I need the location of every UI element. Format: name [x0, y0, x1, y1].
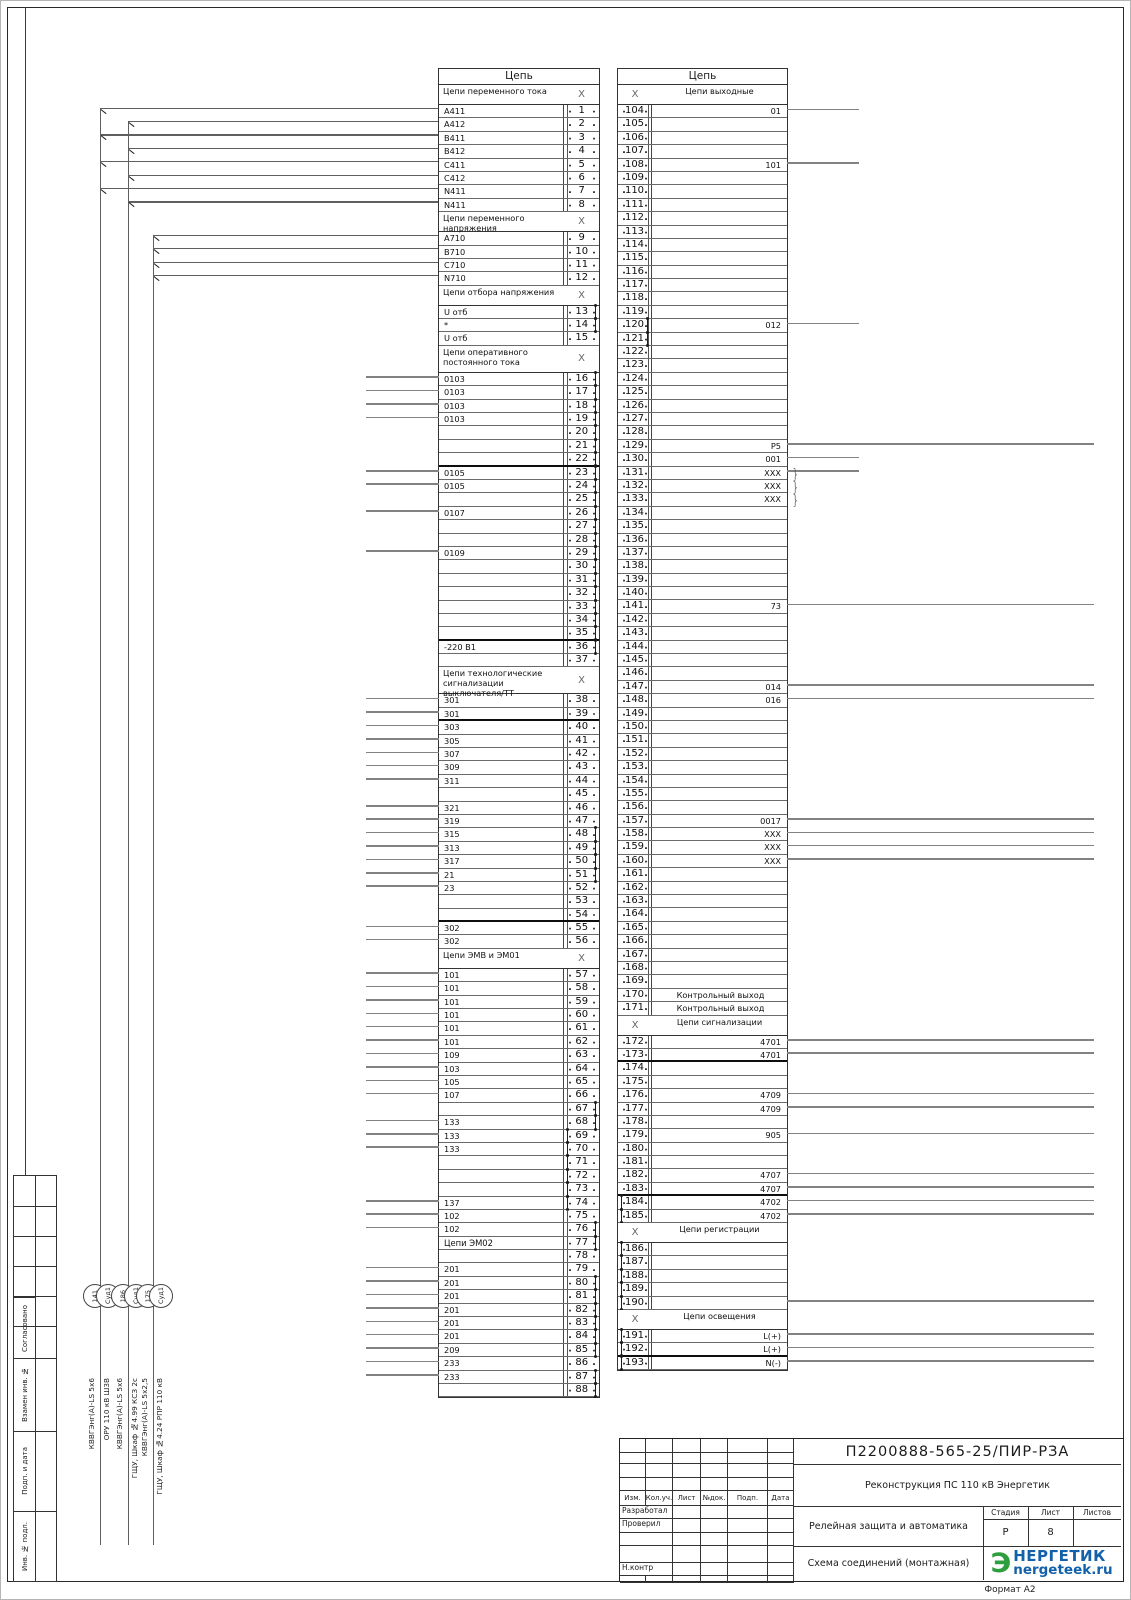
terminal-row: 20 [439, 426, 599, 439]
circuit-label [652, 627, 787, 639]
circuit-label: 101 [439, 996, 564, 1008]
terminal-row: 45 [439, 788, 599, 801]
section-x-mark: X [564, 949, 599, 968]
terminal-number: 129 [618, 440, 652, 452]
cable-destination-label: ОРУ 110 кВ Ш3В [102, 1378, 113, 1543]
terminal-row: 20181 [439, 1290, 599, 1303]
wire-line [787, 1200, 1094, 1202]
terminal-row: 138 [618, 560, 787, 573]
terminal-row: 161 [618, 868, 787, 881]
terminal-number: 106 [618, 132, 652, 144]
terminal-row: 30256 [439, 935, 599, 948]
terminal-number: 137 [618, 547, 652, 559]
terminal-row: 13368 [439, 1116, 599, 1129]
circuit-label: C710 [439, 259, 564, 271]
table-title: Цепь [618, 69, 787, 85]
terminal-number: 192 [618, 1343, 652, 1354]
circuit-label: 107 [439, 1089, 564, 1101]
terminal-number: 178 [618, 1116, 652, 1128]
circuit-label [652, 667, 787, 679]
circuit-label: L(+) [652, 1343, 787, 1354]
terminal-row: 27 [439, 520, 599, 533]
section-header-label: Цепи технологические сигнализации выключ… [439, 667, 564, 693]
jumper-link [595, 1236, 596, 1250]
circuit-label: 302 [439, 935, 564, 947]
terminal-number: 79 [564, 1263, 599, 1275]
terminal-number: 71 [564, 1156, 599, 1168]
wire-line [366, 1026, 439, 1028]
terminal-row: 106 [618, 132, 787, 145]
circuit-label [652, 654, 787, 666]
section-header: XЦепи освещения [618, 1310, 787, 1330]
circuit-label: 101 [439, 982, 564, 994]
terminal-number: 76 [564, 1223, 599, 1235]
signature-cell [701, 1519, 728, 1533]
signature-cell [728, 1546, 768, 1563]
circuit-label: N411 [439, 185, 564, 197]
circuit-label [439, 1384, 564, 1396]
terminal-number: 136 [618, 534, 652, 546]
circuit-label: XXX [652, 480, 787, 492]
circuit-label [652, 534, 787, 546]
terminal-number: 20 [564, 426, 599, 438]
terminal-row: 151 [618, 734, 787, 747]
drawing-name: Схема соединений (монтажная) [794, 1546, 984, 1580]
signature-cell [620, 1453, 646, 1464]
terminal-row: 189 [618, 1283, 787, 1296]
terminal-row: 149 [618, 708, 787, 721]
signature-cell [673, 1453, 701, 1464]
logo-e-icon: Э [991, 1550, 1012, 1577]
cable-destination-text: ГЩУ, Шкаф №4.24 РПР 110 кВ [155, 1378, 164, 1495]
circuit-label [439, 560, 564, 572]
terminal-row: 110 [618, 185, 787, 198]
wire-line [787, 1186, 1094, 1188]
terminal-row: 22 [439, 453, 599, 466]
cable-wire [100, 134, 438, 135]
terminal-number: 10 [564, 246, 599, 258]
circuit-label [652, 962, 787, 974]
terminal-row: 30138 [439, 694, 599, 707]
circuit-label: 101 [439, 1022, 564, 1034]
wire-line [787, 443, 1094, 445]
terminal-number: 77 [564, 1237, 599, 1249]
terminal-row: 150 [618, 721, 787, 734]
cable-wire [100, 108, 438, 109]
wire-line [366, 765, 439, 767]
terminal-row: 88 [439, 1384, 599, 1397]
circuit-label: 016 [652, 694, 787, 706]
signature-cell [701, 1576, 728, 1583]
terminal-row: 23386 [439, 1357, 599, 1370]
terminal-number: 144 [618, 641, 652, 653]
sheet-value: 8 [1028, 1519, 1074, 1547]
signature-cell [768, 1439, 794, 1453]
terminal-number: 50 [564, 855, 599, 867]
terminal-number: 36 [564, 641, 599, 653]
terminal-row: 122 [618, 346, 787, 359]
terminal-row: 147014 [618, 681, 787, 694]
sheets-value [1073, 1519, 1121, 1547]
circuit-label [652, 413, 787, 425]
terminal-row: 131XXX} [618, 467, 787, 480]
signature-cell [728, 1453, 768, 1464]
terminal-number: 74 [564, 1197, 599, 1209]
terminal-number: 32 [564, 587, 599, 599]
wire-line [366, 972, 439, 974]
terminal-number: 152 [618, 748, 652, 760]
terminal-row: 1724701 [618, 1036, 787, 1049]
terminal-row: 30255 [439, 922, 599, 935]
section-header-label: Цепи сигнализации [652, 1016, 787, 1035]
wire-line [787, 1133, 1094, 1135]
terminal-row: 148016 [618, 694, 787, 707]
circuit-label: 4707 [652, 1169, 787, 1181]
wire-line [366, 1146, 439, 1148]
terminal-row: 170Контрольный выход [618, 989, 787, 1002]
terminal-row: 10160 [439, 1009, 599, 1022]
cable-type-text: КВВГЭнг(А)-LS 5х2,5 [140, 1378, 149, 1456]
circuit-label [652, 1062, 787, 1074]
terminal-number: 9 [564, 232, 599, 244]
terminal-number: 186 [618, 1243, 652, 1255]
circuit-label [439, 426, 564, 438]
terminal-row: 135 [618, 520, 787, 533]
terminal-row: 167 [618, 949, 787, 962]
terminal-row: C71011 [439, 259, 599, 272]
section-x-mark: X [564, 346, 599, 372]
section-x-mark: X [618, 1223, 652, 1242]
terminal-number: 128 [618, 426, 652, 438]
table-title: Цепь [439, 69, 599, 85]
cable-wire [153, 235, 438, 236]
terminal-row: 154 [618, 775, 787, 788]
terminal-number: 48 [564, 828, 599, 840]
section-header: XЦепи выходные [618, 85, 787, 105]
terminal-number: 39 [564, 708, 599, 719]
circuit-label: 137 [439, 1197, 564, 1209]
circuit-label [652, 426, 787, 438]
circuit-label [652, 641, 787, 653]
terminal-number: 22 [564, 453, 599, 464]
wire-line [366, 1039, 439, 1041]
terminal-row: 116 [618, 266, 787, 279]
signature-cell [620, 1576, 646, 1583]
circuit-label: 305 [439, 735, 564, 747]
signature-cell [728, 1464, 768, 1478]
circuit-label [652, 560, 787, 572]
section-header-label: Цепи переменного напряжения [439, 212, 564, 231]
terminal-row: C4115 [439, 159, 599, 172]
terminal-row: 132XXX} [618, 480, 787, 493]
signature-cell [728, 1478, 768, 1491]
circuit-label: XXX [652, 467, 787, 479]
terminal-row: 143 [618, 627, 787, 640]
terminal-number: 145 [618, 654, 652, 666]
terminal-number: 41 [564, 735, 599, 747]
signature-cell [673, 1464, 701, 1478]
terminal-number: 55 [564, 922, 599, 934]
cable-wire [153, 262, 438, 263]
stamp-label-vzamen: Взамен инв. № [14, 1359, 35, 1430]
terminal-number: 54 [564, 909, 599, 920]
terminal-row: 179905 [618, 1129, 787, 1142]
circuit-label: 101 [652, 159, 787, 171]
cable-wire [153, 248, 438, 249]
terminal-row: 20180 [439, 1277, 599, 1290]
terminal-number: 181 [618, 1156, 652, 1168]
terminal-number: 63 [564, 1049, 599, 1061]
terminal-number: 171 [618, 1002, 652, 1014]
circuit-label: 4701 [652, 1049, 787, 1060]
terminal-row: 181 [618, 1156, 787, 1169]
terminal-row: 30943 [439, 761, 599, 774]
signature-cell [728, 1576, 768, 1583]
terminal-number: 109 [618, 172, 652, 184]
circuit-label: N710 [439, 272, 564, 284]
circuit-label: 201 [439, 1330, 564, 1342]
terminal-number: 28 [564, 534, 599, 546]
circuit-label: 133 [439, 1143, 564, 1155]
circuit-label: C412 [439, 172, 564, 184]
terminal-number: 193 [618, 1357, 652, 1369]
wire-line [366, 859, 439, 861]
jumper-link [621, 1356, 622, 1370]
terminal-row: 73 [439, 1183, 599, 1196]
terminal-number: 150 [618, 721, 652, 733]
circuit-label: 0103 [439, 400, 564, 412]
terminal-number: 30 [564, 560, 599, 572]
signature-cell [768, 1519, 794, 1533]
cable-destination-text: ОРУ 110 кВ Ш3В [102, 1378, 111, 1440]
wire-line [787, 1333, 1094, 1335]
circuit-label [439, 654, 564, 666]
circuit-label [652, 721, 787, 733]
wire-line [366, 805, 439, 807]
cable-type-label: КВВГЭнг(А)-LS 5х6 [87, 1378, 98, 1543]
terminal-number: 81 [564, 1290, 599, 1302]
circuit-label [652, 1243, 787, 1255]
cable-destination-label: ГЩУ, Шкаф №4.24 РПР 110 кВ [155, 1378, 166, 1543]
circuit-label [439, 788, 564, 800]
terminal-number: 110 [618, 185, 652, 197]
wire-line [366, 1361, 439, 1363]
terminal-number: 162 [618, 882, 652, 894]
role-cell [620, 1546, 673, 1563]
terminal-number: 84 [564, 1330, 599, 1342]
stamp-label-inv: Инв. № подл. [14, 1512, 35, 1582]
circuit-label: Контрольный выход [652, 1002, 787, 1014]
circuit-label: U отб [439, 306, 564, 318]
terminal-number: 122 [618, 346, 652, 358]
terminal-row: 188 [618, 1270, 787, 1283]
signature-cell [728, 1506, 768, 1519]
terminal-row: 33 [439, 601, 599, 614]
signature-cell [768, 1546, 794, 1563]
terminal-number: 38 [564, 694, 599, 706]
wire-line [787, 1093, 1094, 1095]
signature-cell [701, 1563, 728, 1576]
circuit-label [652, 172, 787, 184]
signature-cell [768, 1576, 794, 1583]
terminal-number: 165 [618, 922, 652, 934]
terminal-row: 130001 [618, 453, 787, 466]
circuit-label [652, 400, 787, 412]
circuit-label [652, 908, 787, 920]
circuit-label: A710 [439, 232, 564, 244]
terminal-number: 40 [564, 721, 599, 733]
wire-line [787, 1300, 1094, 1302]
wire-line [366, 1133, 439, 1135]
terminal-row: 192L(+) [618, 1343, 787, 1356]
wire-line [366, 1294, 439, 1296]
cable-wire [128, 175, 438, 176]
circuit-label: 233 [439, 1371, 564, 1383]
terminal-number: 174 [618, 1062, 652, 1074]
wire-line [366, 1267, 439, 1269]
terminal-row: 146 [618, 667, 787, 680]
terminal-row: 10161 [439, 1022, 599, 1035]
circuit-label [652, 788, 787, 800]
circuit-label: XXX [652, 828, 787, 840]
circuit-label [439, 520, 564, 532]
terminal-number: 156 [618, 801, 652, 813]
sheet-label: Лист [1028, 1506, 1074, 1520]
signature-cell [673, 1576, 701, 1583]
circuit-label [652, 118, 787, 130]
circuit-label: 21 [439, 869, 564, 881]
terminal-row: 113 [618, 226, 787, 239]
terminal-number: 11 [564, 259, 599, 271]
circuit-label: Контрольный выход [652, 989, 787, 1001]
circuit-label: B412 [439, 145, 564, 157]
terminal-row: 32 [439, 587, 599, 600]
circuit-label: 905 [652, 1129, 787, 1141]
terminal-number: 142 [618, 614, 652, 626]
wire-line [366, 550, 439, 552]
terminal-row: 10158 [439, 982, 599, 995]
signature-cell [673, 1439, 701, 1453]
wire-line [787, 1347, 1094, 1349]
circuit-label [652, 975, 787, 987]
wire-line [366, 376, 439, 378]
wire-line [787, 858, 1094, 860]
cable-type-label: КВВГЭнг(А)-LS 5х6 [115, 1378, 126, 1543]
circuit-label: 317 [439, 855, 564, 867]
terminal-row: 140 [618, 587, 787, 600]
terminal-row: 31 [439, 574, 599, 587]
terminal-number: 141 [618, 600, 652, 612]
terminal-row: 53 [439, 895, 599, 908]
terminal-number: 25 [564, 493, 599, 505]
circuit-label: 0103 [439, 386, 564, 398]
circuit-label [439, 1156, 564, 1168]
signature-cell [768, 1533, 794, 1546]
terminal-number: 146 [618, 667, 652, 679]
terminal-row: 145 [618, 654, 787, 667]
signature-cell [620, 1464, 646, 1478]
terminal-number: 166 [618, 935, 652, 947]
circuit-label [652, 1270, 787, 1282]
circuit-label [652, 574, 787, 586]
circuit-label [439, 601, 564, 613]
circuit-label: N411 [439, 199, 564, 211]
terminal-number: 33 [564, 601, 599, 613]
margin-stamp: Согласовано Взамен инв. № Подп. и дата И… [13, 1175, 57, 1582]
jumper-link [595, 1383, 596, 1397]
circuit-label [439, 453, 564, 464]
jumper-link [647, 332, 648, 346]
terminal-row: 31349 [439, 842, 599, 855]
terminal-number: 88 [564, 1384, 599, 1396]
terminal-number: 177 [618, 1103, 652, 1115]
terminal-row: 31144 [439, 775, 599, 788]
terminal-number: 168 [618, 962, 652, 974]
wire-line [366, 1227, 439, 1229]
signature-cell [768, 1563, 794, 1576]
circuit-label: 4707 [652, 1183, 787, 1194]
terminal-row: 178 [618, 1116, 787, 1129]
terminal-row: 10162 [439, 1036, 599, 1049]
circuit-label: A411 [439, 105, 564, 117]
terminal-row: 20183 [439, 1317, 599, 1330]
circuit-label [652, 775, 787, 787]
terminal-number: 116 [618, 266, 652, 278]
terminal-number: 188 [618, 1270, 652, 1282]
circuit-label [652, 279, 787, 291]
terminal-row: 121 [618, 333, 787, 346]
signature-cell [728, 1519, 768, 1533]
terminal-row: 10963 [439, 1049, 599, 1062]
circuit-label: B710 [439, 246, 564, 258]
cable-tag-marker: Суд1 [149, 1284, 173, 1308]
terminal-number: 121 [618, 333, 652, 345]
circuit-label: 311 [439, 775, 564, 787]
wire-line [787, 604, 1094, 606]
cable-wire [128, 148, 438, 149]
terminal-row: 30340 [439, 721, 599, 734]
jumper-link [595, 640, 596, 654]
wire-line [366, 752, 439, 754]
signature-cell [701, 1453, 728, 1464]
wire-line [366, 1280, 439, 1282]
circuit-label: A412 [439, 118, 564, 130]
terminal-row: U отб15 [439, 332, 599, 345]
terminal-number: 105 [618, 118, 652, 130]
format-label: Формат А2 [950, 1585, 1070, 1595]
terminal-number: 187 [618, 1256, 652, 1268]
terminal-number: 159 [618, 841, 652, 853]
terminal-number: 23 [564, 467, 599, 479]
signature-cell [646, 1464, 673, 1478]
wire-line [787, 832, 1094, 834]
terminal-row: A4111 [439, 105, 599, 118]
section-header: Цепи переменного токаX [439, 85, 599, 105]
circuit-label: 302 [439, 922, 564, 934]
terminal-row: 10364 [439, 1063, 599, 1076]
cable-wire [153, 275, 438, 276]
section-header-label: Цепи ЭМВ и ЭМ01 [439, 949, 564, 968]
signature-cell [646, 1439, 673, 1453]
terminal-number: 124 [618, 373, 652, 385]
terminal-row: 10401 [618, 105, 787, 118]
circuit-label: 23 [439, 882, 564, 894]
jumper-link [621, 1342, 622, 1355]
terminal-row: 166 [618, 935, 787, 948]
terminal-number: 127 [618, 413, 652, 425]
terminal-row: 136 [618, 534, 787, 547]
circuit-label: 201 [439, 1317, 564, 1329]
